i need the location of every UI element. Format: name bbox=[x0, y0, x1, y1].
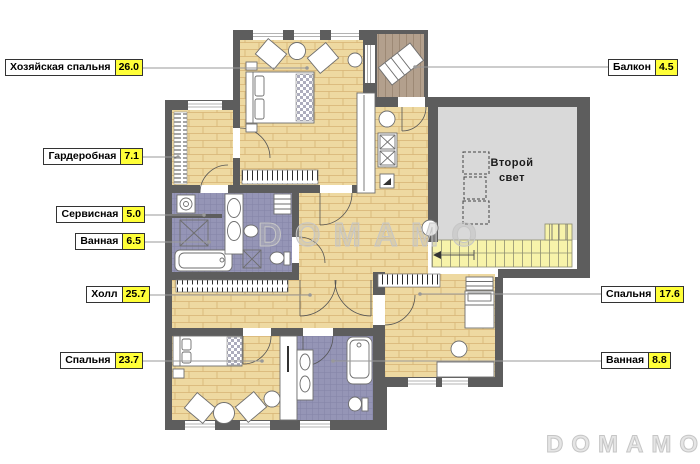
room-name: Спальня bbox=[602, 287, 655, 302]
room-label-service: Сервисная 5.0 bbox=[56, 206, 145, 223]
balcony-window bbox=[365, 45, 375, 83]
room-name: Сервисная bbox=[57, 207, 122, 222]
window bbox=[185, 421, 215, 430]
door-opening bbox=[243, 328, 271, 336]
toilet bbox=[362, 398, 368, 411]
bed bbox=[465, 291, 494, 328]
room-name: Балкон bbox=[609, 60, 655, 75]
room-name: Хозяйская спальня bbox=[6, 60, 115, 75]
staircase-landing bbox=[545, 224, 572, 240]
room-area-badge: 4.5 bbox=[655, 60, 677, 75]
room-name: Ванная bbox=[602, 353, 648, 368]
door-opening bbox=[320, 185, 352, 193]
room-area-badge: 6.5 bbox=[122, 234, 144, 249]
round-table bbox=[289, 43, 306, 60]
room-area-badge: 26.0 bbox=[115, 60, 142, 75]
room-label-master-bedroom: Хозяйская спальня 26.0 bbox=[5, 59, 143, 76]
room-name: Холл bbox=[87, 287, 121, 302]
door-opening bbox=[303, 328, 333, 336]
room-name: Спальня bbox=[61, 353, 114, 368]
room-area-badge: 5.0 bbox=[122, 207, 144, 222]
wardrobe-fixtures bbox=[174, 112, 187, 184]
second-light-line1: Второй bbox=[466, 156, 558, 171]
chair bbox=[451, 341, 467, 357]
chair bbox=[264, 391, 280, 407]
room-label-wardrobe: Гардеробная 7.1 bbox=[43, 148, 143, 165]
hall-wardrobe bbox=[176, 280, 288, 292]
second-light-line2: свет bbox=[466, 171, 558, 186]
utility-box bbox=[380, 174, 394, 188]
dresser bbox=[466, 277, 493, 290]
window bbox=[240, 421, 270, 430]
room-label-bedroom-2: Спальня 23.7 bbox=[60, 352, 143, 369]
balcony-door-opening bbox=[398, 97, 425, 107]
room-area-badge: 23.7 bbox=[115, 353, 142, 368]
room-label-balcony: Балкон 4.5 bbox=[608, 59, 678, 76]
round-table bbox=[214, 403, 235, 424]
door-opening bbox=[200, 185, 228, 193]
room-label-bathroom-1: Ванная 6.5 bbox=[75, 233, 145, 250]
room-name: Ванная bbox=[76, 234, 122, 249]
side-table bbox=[348, 53, 362, 67]
room-area-badge: 7.1 bbox=[120, 149, 142, 164]
room-name: Гардеробная bbox=[44, 149, 120, 164]
sink-counter bbox=[225, 194, 243, 254]
wardrobe-unit bbox=[242, 170, 318, 184]
hall-fixtures bbox=[176, 280, 288, 292]
desk bbox=[437, 362, 494, 377]
window bbox=[331, 30, 359, 40]
room-label-bedroom-3: Спальня 17.6 bbox=[601, 286, 684, 303]
room-area-badge: 25.7 bbox=[122, 287, 149, 302]
room-label-hall: Холл 25.7 bbox=[86, 286, 150, 303]
watermark-center: DOMAMO bbox=[258, 216, 490, 254]
sink bbox=[244, 225, 258, 237]
sink bbox=[379, 111, 395, 127]
window bbox=[300, 421, 330, 430]
window bbox=[188, 101, 222, 110]
door-opening bbox=[373, 295, 385, 325]
room-area-badge: 17.6 bbox=[655, 287, 682, 302]
door-opening bbox=[233, 128, 240, 158]
watermark-corner: DOMAMO bbox=[546, 431, 700, 459]
room-area-badge: 8.8 bbox=[648, 353, 670, 368]
window bbox=[294, 30, 320, 40]
cabinet bbox=[378, 133, 397, 167]
sink-counter bbox=[297, 350, 313, 400]
window bbox=[408, 378, 436, 387]
second-light-label: Второй свет bbox=[466, 156, 558, 186]
clothes-rail bbox=[174, 112, 187, 184]
floor-plan-page: Хозяйская спальня 26.0 Балкон 4.5 Гардер… bbox=[0, 0, 700, 464]
window bbox=[442, 378, 468, 387]
partition-wardrobe bbox=[357, 93, 375, 193]
wardrobe-unit bbox=[378, 274, 440, 287]
room-label-bathroom-2: Ванная 8.8 bbox=[601, 352, 671, 369]
